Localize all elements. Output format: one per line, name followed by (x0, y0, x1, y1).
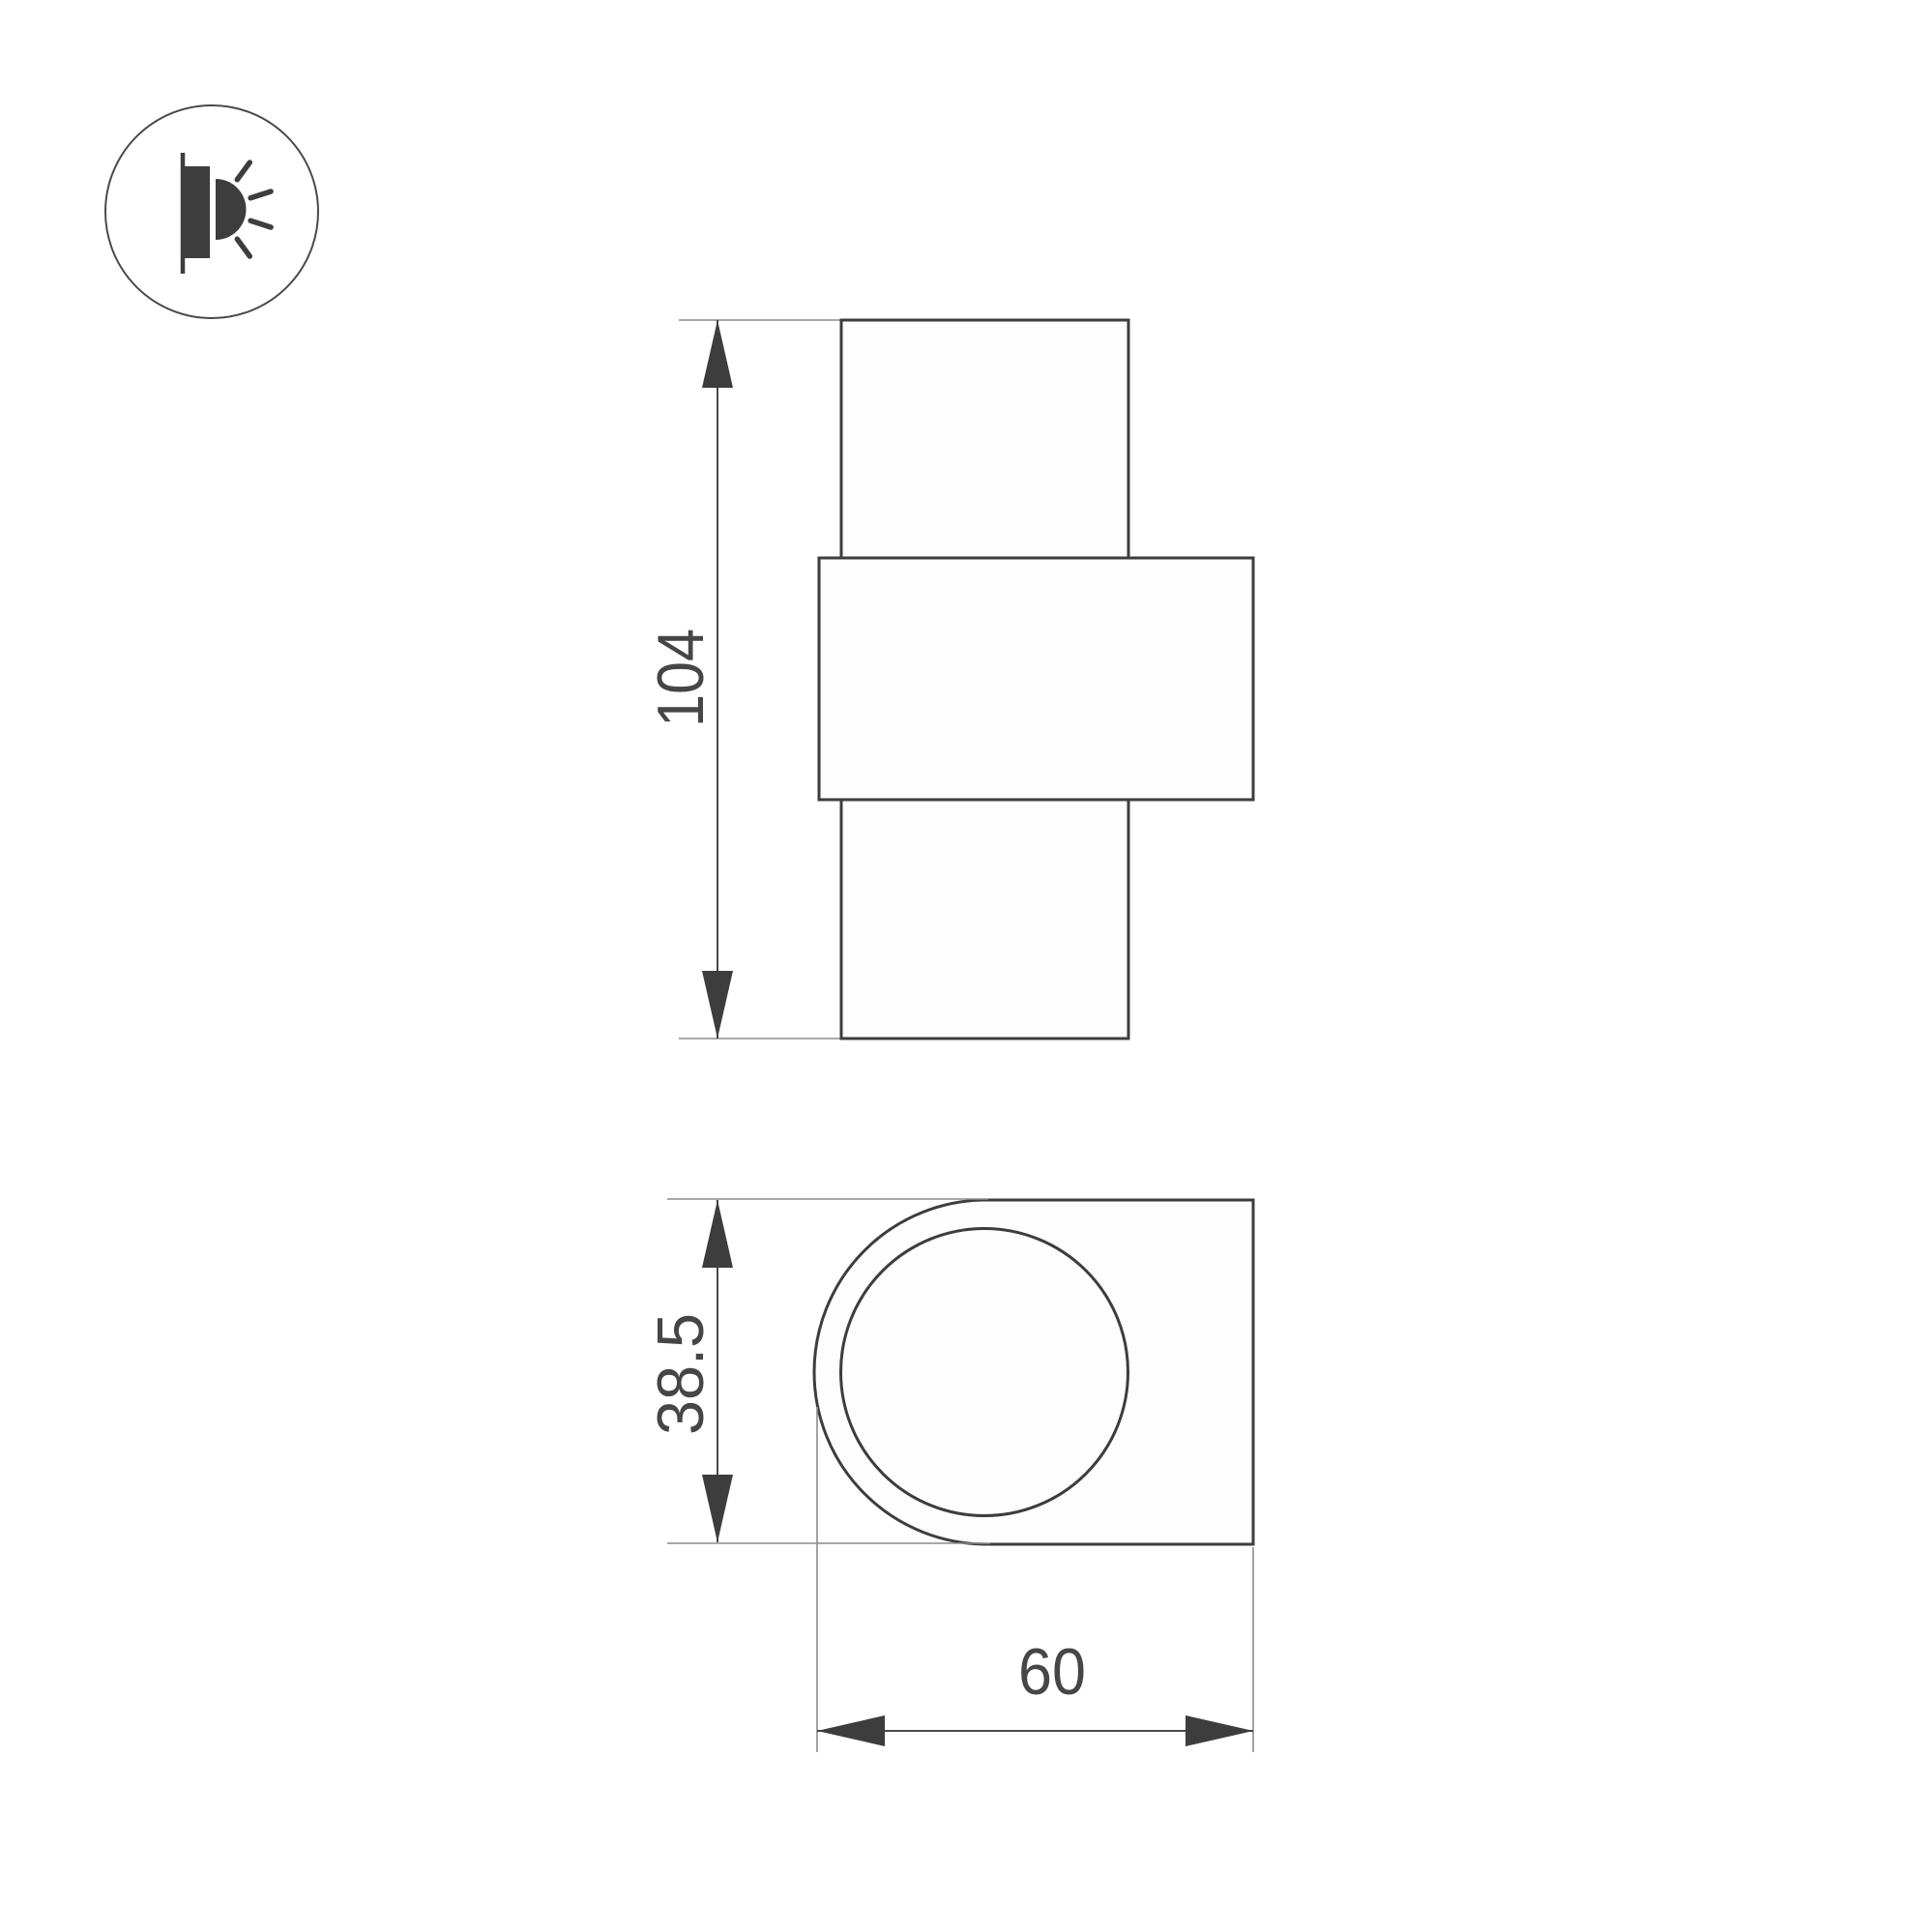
front-top-tube (841, 320, 1128, 558)
height-dimension: 104 (644, 320, 845, 1039)
arrowhead-up-icon (702, 1200, 733, 1268)
icon-circle-border (105, 105, 318, 318)
arrowhead-down-icon (702, 971, 733, 1039)
drawing-canvas: 104 38.5 60 (0, 0, 1932, 1932)
side-view (814, 1200, 1253, 1544)
arrowhead-right-icon (1186, 1715, 1253, 1746)
front-view (819, 320, 1253, 1039)
wall-lamp-icon (105, 105, 318, 318)
arrowhead-down-icon (702, 1475, 733, 1542)
front-bottom-tube (841, 800, 1128, 1039)
icon-lamp-body (185, 166, 210, 258)
drawing-page: 104 38.5 60 (0, 0, 1932, 1932)
arrowhead-up-icon (702, 320, 733, 388)
arrowhead-left-icon (817, 1715, 885, 1746)
dimension-label-width: 60 (1018, 1635, 1086, 1709)
side-lamp-face (841, 1229, 1128, 1516)
dimension-label-height: 104 (644, 629, 717, 727)
dimension-label-depth: 38.5 (644, 1313, 717, 1435)
front-middle-body (819, 558, 1253, 800)
